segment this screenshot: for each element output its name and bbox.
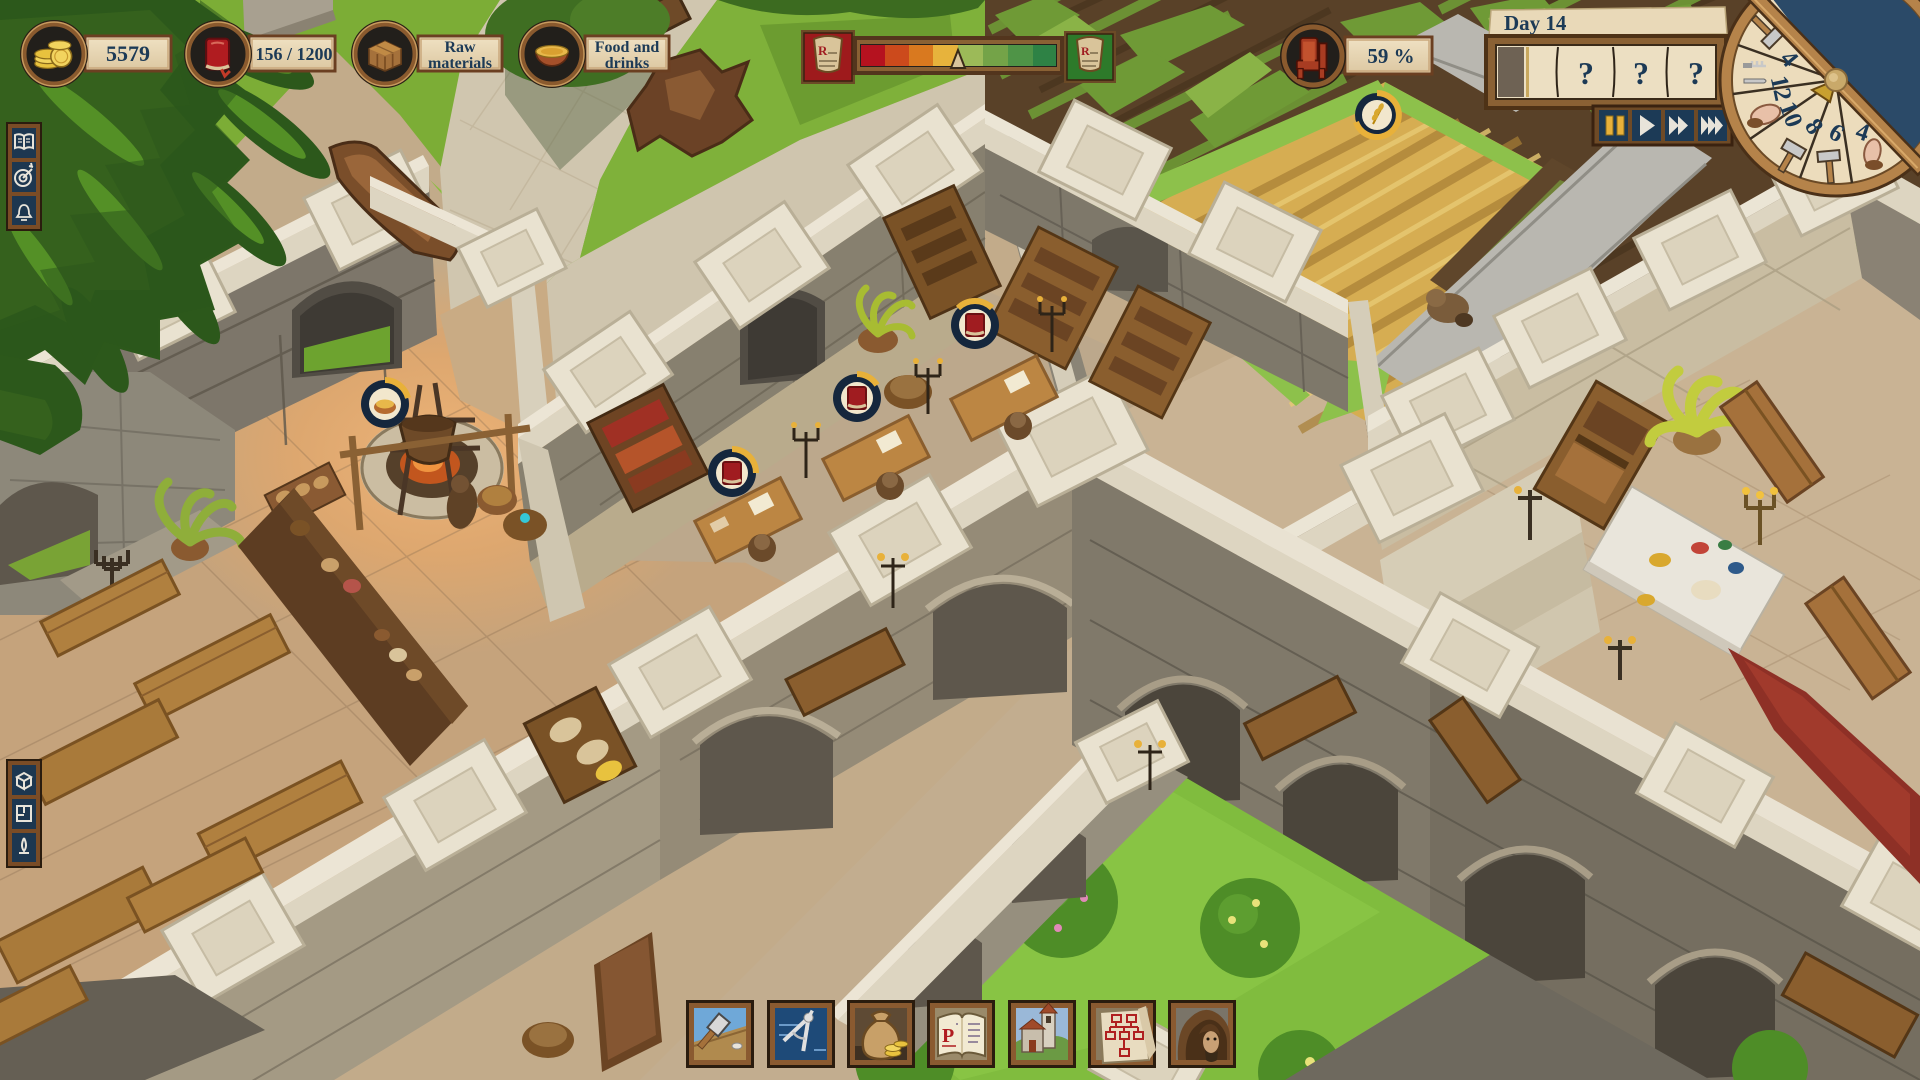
- svg-text:materials: materials: [428, 55, 492, 72]
- svg-text:drinks: drinks: [605, 55, 649, 72]
- svg-text:59 %: 59 %: [1367, 44, 1414, 68]
- svg-text:?: ?: [1633, 55, 1649, 91]
- svg-text:Food and: Food and: [595, 39, 660, 56]
- svg-text:Day 14: Day 14: [1504, 11, 1567, 35]
- svg-text:156 / 1200: 156 / 1200: [255, 44, 332, 64]
- svg-text:5579: 5579: [106, 41, 150, 66]
- svg-text:Raw: Raw: [444, 39, 476, 56]
- svg-text:R: R: [1081, 44, 1090, 58]
- svg-text:?: ?: [1578, 55, 1594, 91]
- svg-text:R: R: [818, 43, 828, 58]
- svg-text:?: ?: [1688, 55, 1704, 91]
- svg-text:P: P: [942, 1025, 954, 1047]
